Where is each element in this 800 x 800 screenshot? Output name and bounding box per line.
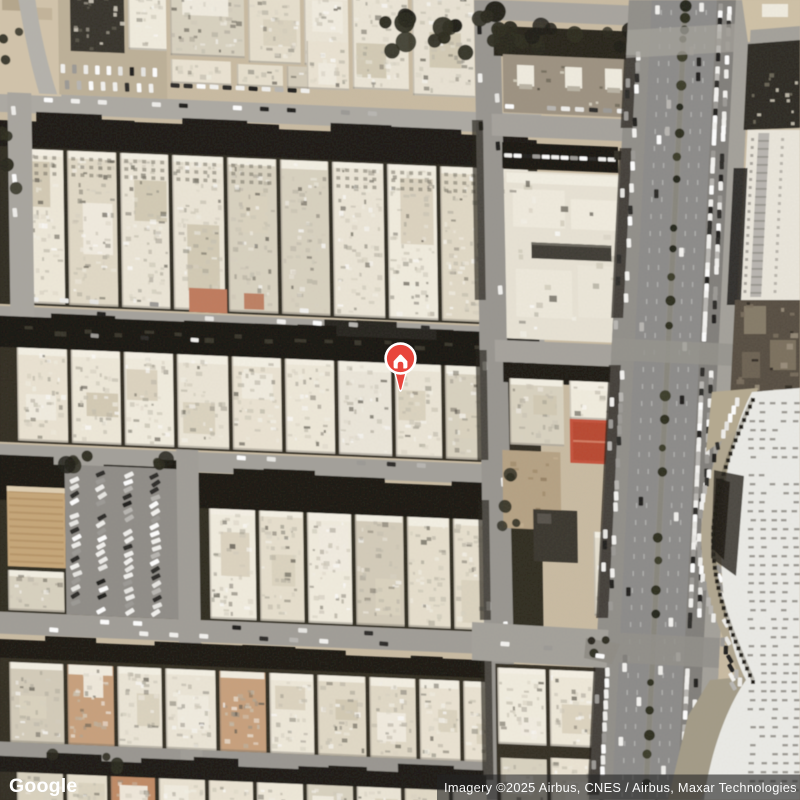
- svg-text:Imagery ©2025 Airbus, CNES / A: Imagery ©2025 Airbus, CNES / Airbus, Max…: [444, 780, 797, 795]
- svg-text:Google: Google: [9, 775, 77, 797]
